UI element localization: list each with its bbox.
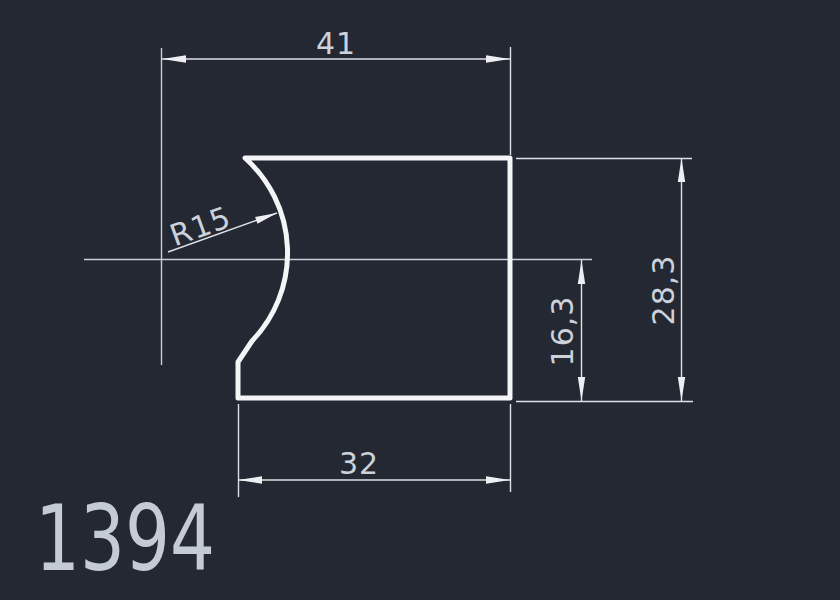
profile-outline [238,158,510,398]
dim-top-label: 41 [316,26,356,61]
part-number-label: 1394 [35,486,215,591]
dim-inner-label: 16,3 [545,296,580,367]
radius-leader-arrow [255,213,277,224]
dim-bottom-arrow-left [238,476,262,483]
dim-right-label: 28,3 [646,255,681,326]
dim-top-arrow-left [162,55,186,62]
dim-bottom-arrow-right [486,476,510,483]
dim-top-arrow-right [486,55,510,62]
dim-inner-arrow-top [578,260,585,284]
technical-drawing: 41 32 28,3 16,3 R15 1394 [0,0,840,600]
cad-canvas: 41 32 28,3 16,3 R15 1394 [0,0,840,600]
dim-bottom-label: 32 [339,446,379,481]
dim-right-arrow-bottom [678,377,685,401]
dim-right-arrow-top [678,158,685,182]
radius-label: R15 [165,199,235,253]
dim-inner-arrow-bottom [578,377,585,401]
